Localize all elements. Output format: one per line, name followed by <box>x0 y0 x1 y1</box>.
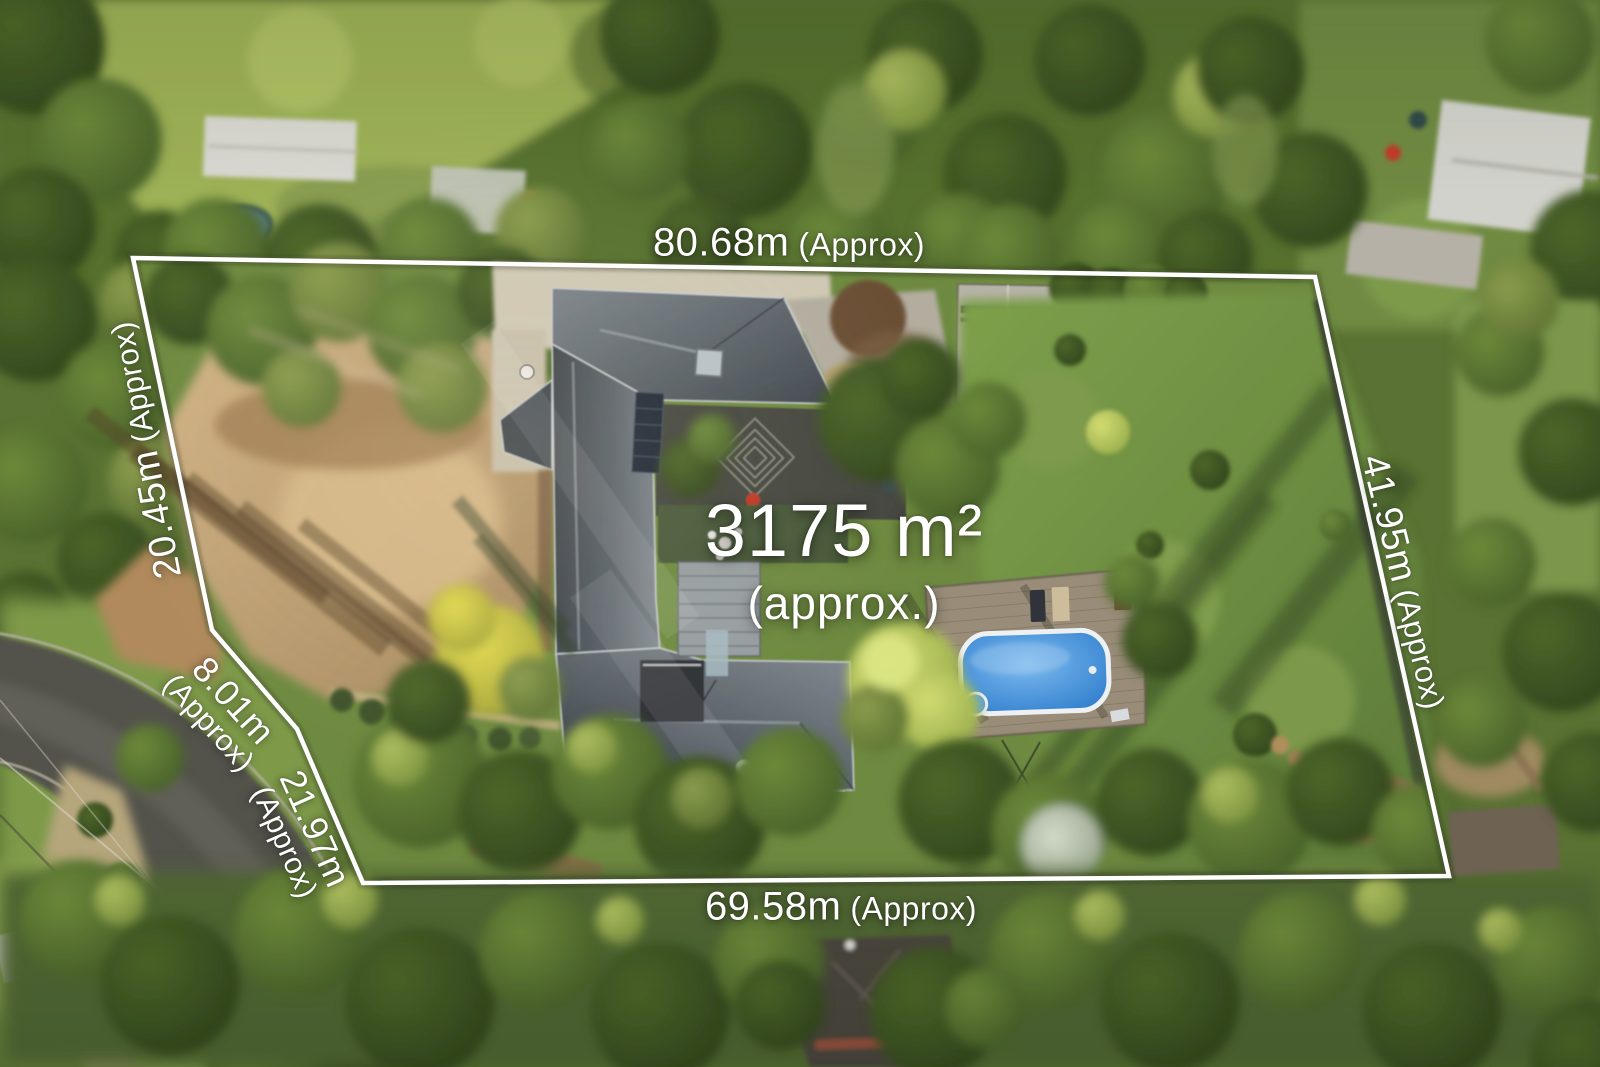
dimension-value: 69.58m <box>705 885 841 929</box>
dark-tank <box>1409 111 1427 129</box>
dimension-label-top: 80.68m(Approx) <box>653 221 925 266</box>
red-object <box>1385 145 1401 161</box>
dimension-label-bottom: 69.58m(Approx) <box>705 885 977 930</box>
sun-lounge <box>1052 587 1070 622</box>
bbq <box>1030 590 1046 623</box>
dimension-qualifier: (Approx) <box>798 227 925 263</box>
aerial-property-photo: 80.68m(Approx) 69.58m(Approx) 20.45m(App… <box>0 0 1600 1067</box>
solar-panels <box>632 392 664 473</box>
land-area-qualifier: (approx.) <box>705 580 983 626</box>
dimension-value: 80.68m <box>653 221 789 265</box>
glazed-roof <box>706 630 728 676</box>
skylight <box>695 349 723 377</box>
neighbour-roof-right <box>1448 804 1560 875</box>
land-area-label: 3175 m² (approx.) <box>705 494 983 626</box>
land-area-value: 3175 m² <box>705 494 983 568</box>
right-band-trees <box>1437 260 1600 832</box>
dimension-qualifier: (Approx) <box>850 891 977 927</box>
